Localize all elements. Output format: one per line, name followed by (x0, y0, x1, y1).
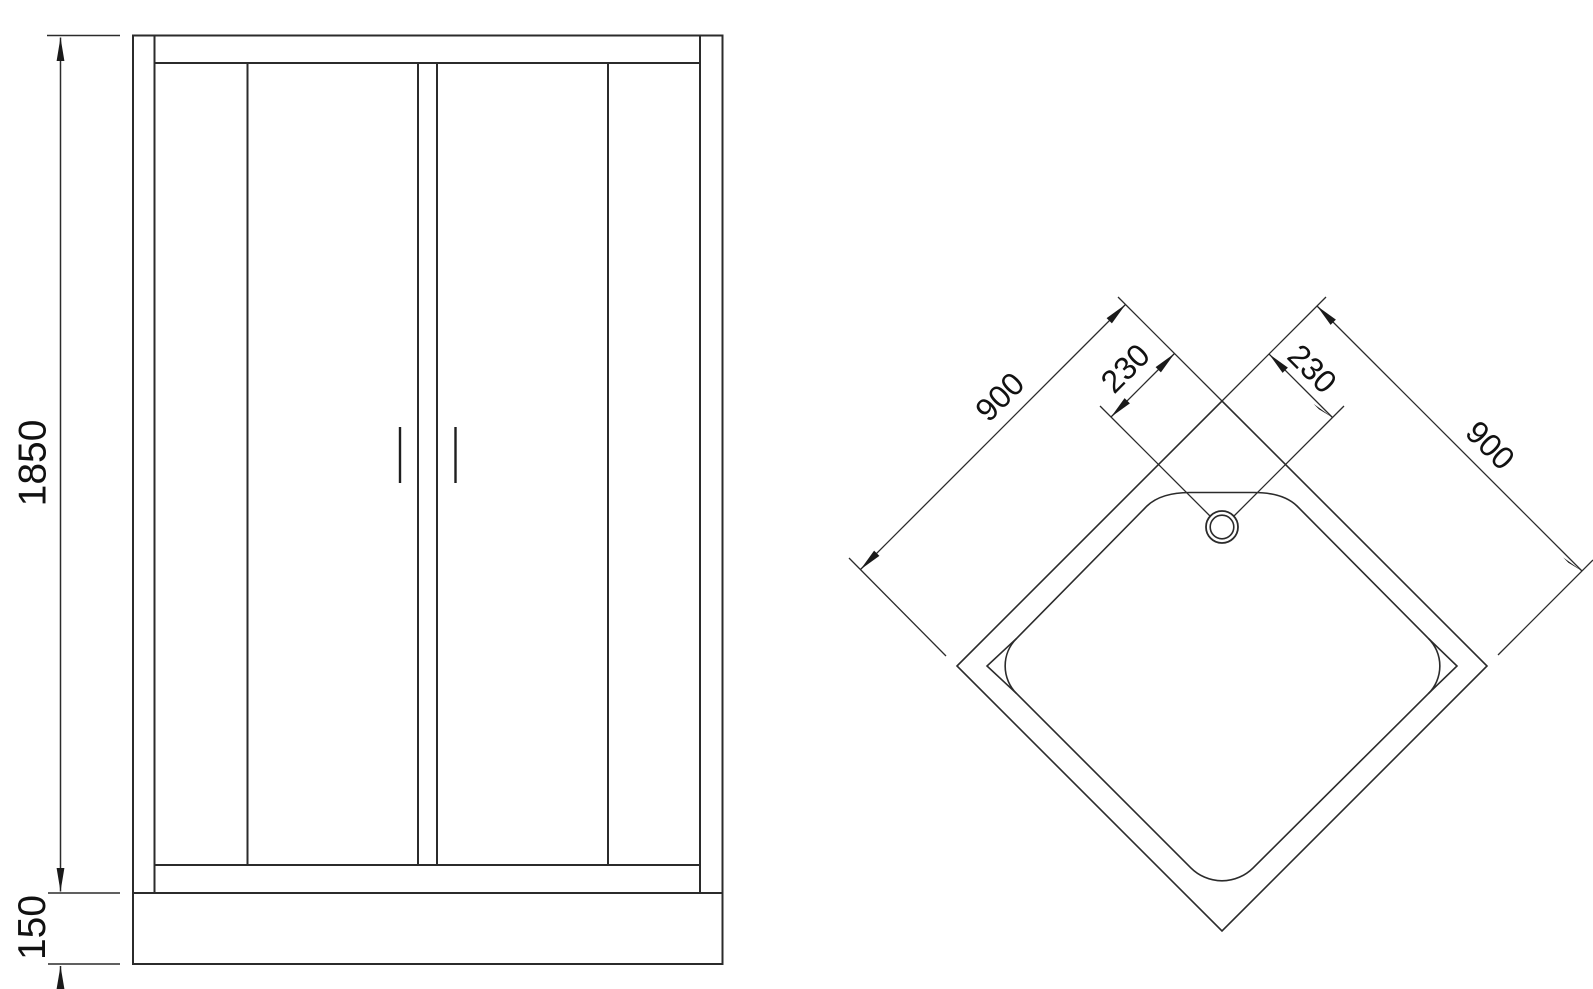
svg-text:150: 150 (11, 895, 54, 960)
svg-text:1850: 1850 (12, 420, 55, 507)
